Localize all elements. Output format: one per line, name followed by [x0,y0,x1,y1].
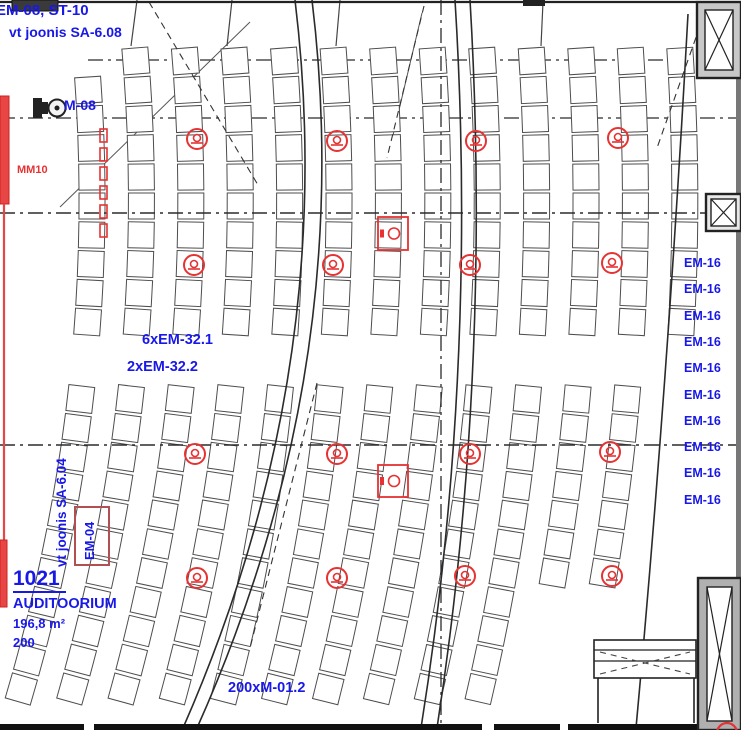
seat-type-label: 200xM-01.2 [228,681,305,696]
electrical-symbols [0,96,737,730]
cable-label-top: EM-08, ST-10 [0,3,89,18]
speaker-icon [185,444,205,464]
cable-label: EM-16 [684,440,721,454]
speaker-icon [602,253,622,273]
cable-label: EM-16 [684,335,721,349]
cable-label: EM-16 [684,361,721,375]
cable-label-mid1: 6xEM-32.1 [142,333,213,348]
cable-label: EM-16 [684,388,721,402]
cable-label: EM-16 [684,466,721,480]
drawing-ref-top: vt joonis SA-6.08 [9,25,122,39]
room-name: AUDITOORIUM [13,597,117,612]
auditorium-floor-plan: EM-08, ST-10 vt joonis SA-6.08 M-08 MM10… [0,0,741,730]
floor-plan-drawing [0,0,741,730]
cable-label: EM-16 [684,282,721,296]
floor-box-label: EM-04 [83,522,96,560]
room-number: 1021 [13,568,66,593]
cable-label: EM-16 [684,309,721,323]
cable-label: EM-16 [684,414,721,428]
drawing-ref-side: vt joonis SA-6.04 [55,458,69,567]
room-area: 196,8 m² [13,617,65,630]
projector-label: M-08 [64,98,96,112]
cable-label-mid2: 2xEM-32.2 [127,360,198,375]
room-capacity: 200 [13,636,35,649]
cable-label: EM-16 [684,493,721,507]
wall-strip-label: MM10 [17,165,48,176]
aisle-rail-curves [131,0,688,728]
cable-label: EM-16 [684,256,721,270]
floor-box-em04: EM-04 [74,506,110,566]
